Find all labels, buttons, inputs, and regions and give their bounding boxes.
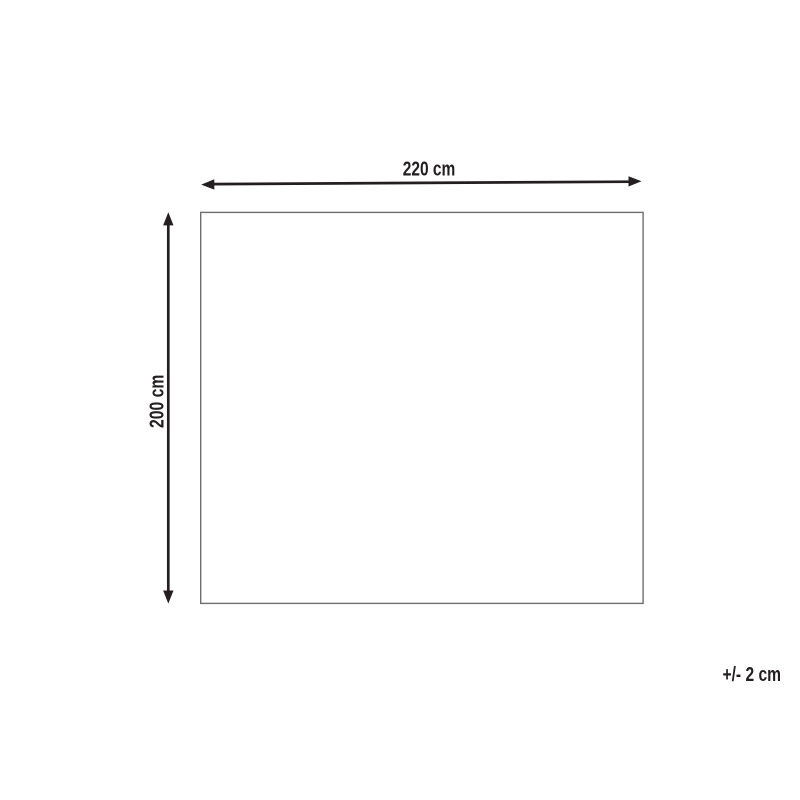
svg-text:220 cm: 220 cm	[403, 159, 456, 181]
svg-text:+/- 2 cm: +/- 2 cm	[723, 664, 782, 686]
svg-text:200 cm: 200 cm	[146, 375, 168, 429]
